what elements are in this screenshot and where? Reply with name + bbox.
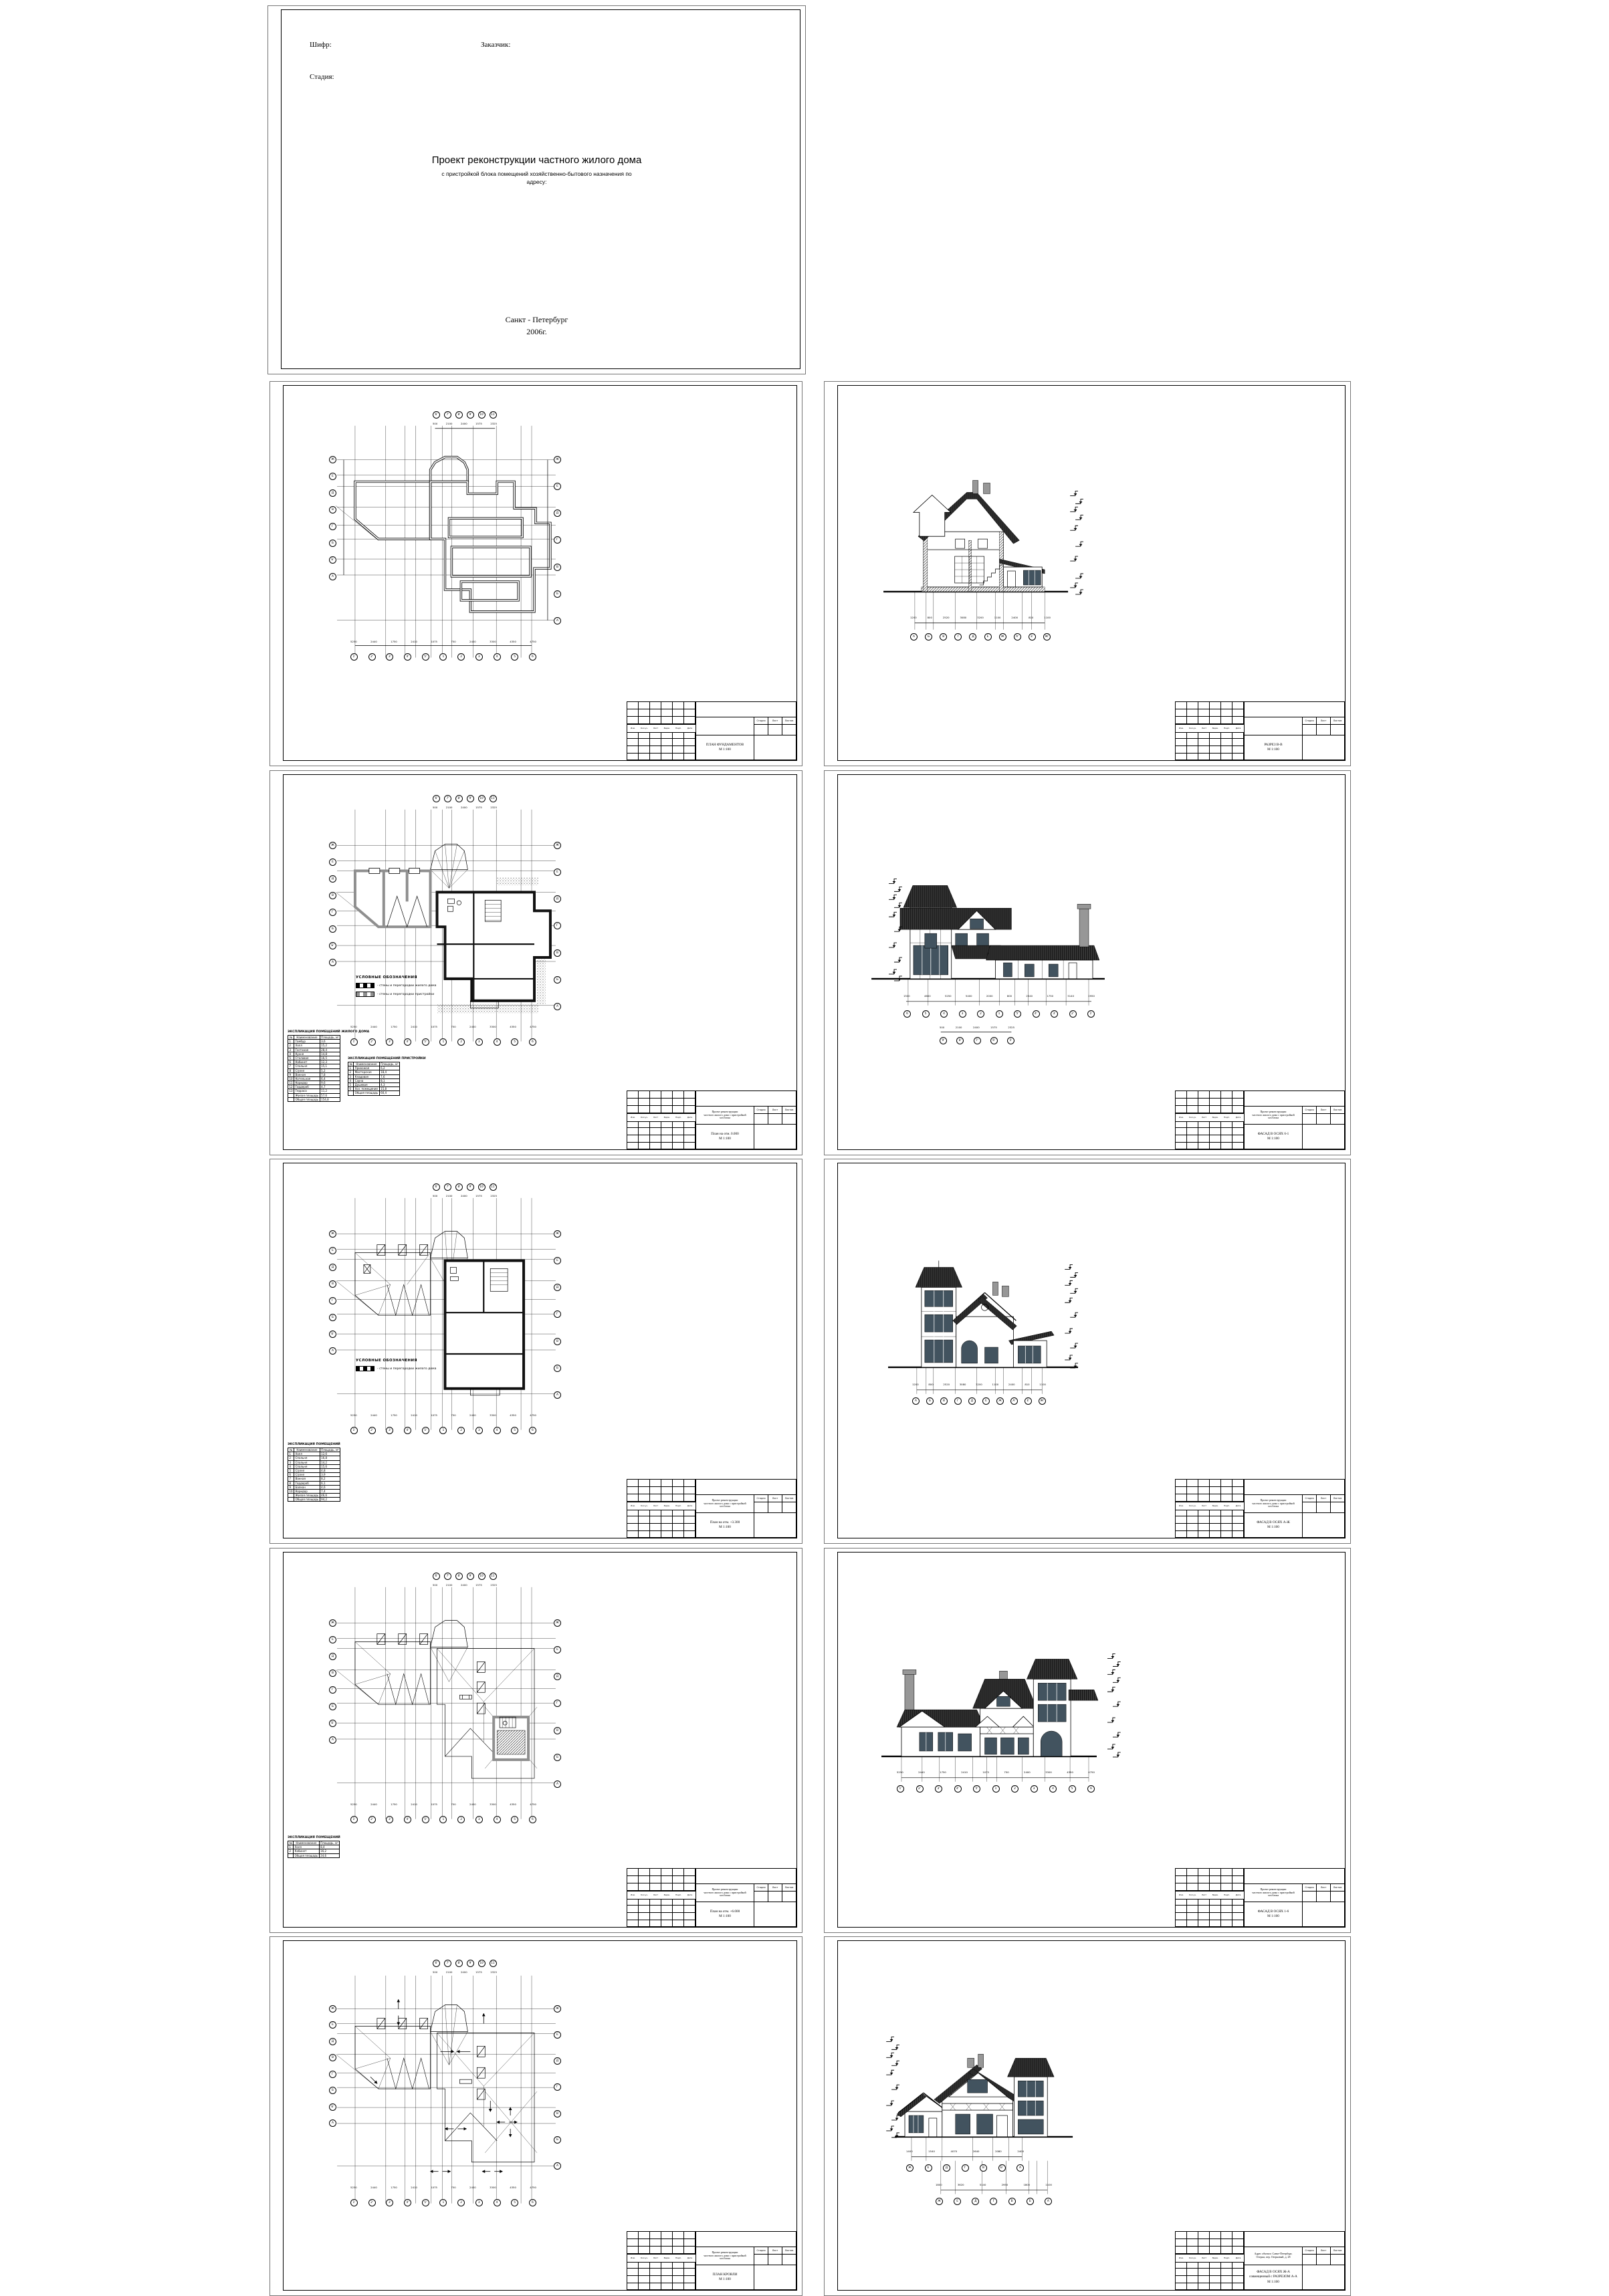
revision-table: Изм.Кол.уч.Лист№док.Подп.Дата — [627, 1480, 696, 1537]
axis-col-right: ЖЕДГВБА — [554, 456, 561, 624]
axis-row-bottom: 1'2'3'4'5'123456 — [897, 1785, 1095, 1793]
sheet-title: ПЛАН КРОВЛИМ 1:100 — [696, 2265, 754, 2289]
project-name-cell: Проект реконструкциичастного жилого дома… — [696, 2247, 754, 2265]
dim-row-bottom: 1200800252030803200110024008101100 — [910, 616, 1051, 619]
client-label: Заказчик: — [481, 41, 510, 49]
year: 2006г. — [268, 327, 805, 337]
dim-row-bottom: 150046005250540020008002540175051402950 — [903, 994, 1095, 998]
title-block: Изм.Кол.уч.Лист№док.Подп.Дата СтадияЛист… — [627, 701, 796, 760]
section-house — [914, 480, 1045, 591]
project-name-cell: Проект реконструкциичастного жилого дома… — [696, 1884, 754, 1902]
sheet-title: ФАСАД В ОСЯХ Ж-Асовмещенный с РАЗРЕЗОМ А… — [1245, 2265, 1302, 2289]
elevation-house — [897, 1659, 1098, 1756]
skylight-icons — [364, 1245, 428, 1274]
wall-symbol-home — [356, 1366, 374, 1371]
dim-row-top: 5002100240015752325 — [433, 422, 497, 425]
revision-table: Изм.Кол.уч.Лист№док.Подп.Дата — [1176, 2232, 1245, 2289]
chimney — [968, 2058, 974, 2067]
title-block: Изм.Кол.уч.Лист№док.Подп.Дата Проект рек… — [1175, 1479, 1345, 1538]
title-block: Изм.Кол.уч.Лист№док.Подп.Дата Проект рек… — [627, 1090, 796, 1149]
bay-roof — [431, 844, 468, 889]
status-table: СтадияЛистЛистов — [1302, 717, 1344, 735]
axis-row-bottom: 1'2'3'4'5'123456 — [350, 1038, 536, 1046]
dim-row-bottom: 525024401750241010757502400330043504750 — [350, 1803, 536, 1806]
project-title: Проект реконструкции частного жилого дом… — [268, 154, 805, 166]
tower-roof — [1027, 1659, 1077, 1679]
revision-table: Изм.Кол.уч.Лист№док.Подп.Дата — [627, 1091, 696, 1149]
revision-table: Изм.Кол.уч.Лист№док.Подп.Дата — [627, 2232, 696, 2289]
status-table: СтадияЛистЛистов — [754, 717, 796, 735]
axis-row-bottom: 1'2'3'4'5'123456 — [350, 2199, 536, 2206]
sheet-title: ФАСАД В ОСЯХ 6-1М 1:100 — [1245, 1125, 1302, 1149]
revision-table: Изм.Кол.уч.Лист№док.Подп.Дата — [1176, 702, 1245, 760]
axis-col-right: ЖЕДГВБА — [554, 1230, 561, 1399]
revision-table: Изм.Кол.уч.Лист№док.Подп.Дата — [1176, 1869, 1245, 1926]
arched-window — [1041, 1731, 1062, 1756]
revision-table: Изм.Кол.уч.Лист№док.Подп.Дата — [627, 1869, 696, 1926]
axis-row-1: ЖЕДГВБ'А — [906, 2164, 1024, 2172]
status-table: СтадияЛистЛистов — [1302, 1884, 1344, 1902]
elevation-marks — [889, 879, 902, 980]
title-block: Изм.Кол.уч.Лист№док.Подп.Дата Проект рек… — [627, 1868, 796, 1927]
sheet-facade-zh-a: 140015404070264020802400 ЖЕДГВБ'А 180036… — [824, 1936, 1351, 2296]
title-block: Изм.Кол.уч.Лист№док.Подп.Дата Проект рек… — [1175, 1868, 1345, 1927]
main-roof-band — [900, 908, 1011, 929]
side-roof — [1069, 1690, 1098, 1700]
elevation-house — [900, 885, 1099, 979]
axis-row-bottom: 6543215'4'3'2'1' — [903, 1010, 1095, 1018]
drawing-set-page: { "colors":{"ink":"#000000","roof_dark":… — [0, 0, 1609, 2296]
revision-table: Изм.Кол.уч.Лист№док.Подп.Дата — [627, 702, 696, 760]
dim-row-bottom: 1200800252030803200110024008101100 — [912, 1383, 1046, 1386]
elevation-marks — [1070, 491, 1083, 594]
axis-col-right: ЖЕДГВБА — [554, 842, 561, 1010]
slope-arrows — [370, 2000, 517, 2172]
legend: УСЛОВНЫЕ ОБОЗНАЧЕНИЯ - стены и перегород… — [356, 975, 456, 1000]
axis-row-top: 6'7'8'9'10'11' — [433, 1960, 497, 1967]
sheet-facade-1-6: 525024401750241010757502400330043504750 … — [824, 1548, 1351, 1933]
sheet-title: План на отм. +3.300М 1:100 — [696, 1513, 754, 1537]
dim-row-bottom: 525024401750241010757502400330043504750 — [350, 1413, 536, 1417]
wall-symbol-addition — [356, 992, 374, 997]
axis-col-right: ЖЕДГВБА — [554, 1619, 561, 1788]
title-block: Изм.Кол.уч.Лист№док.Подп.Дата Адрес объе… — [1175, 2231, 1345, 2290]
chimney — [1079, 908, 1089, 947]
axis-col-right: ЖЕДГВБА — [554, 2005, 561, 2170]
sheet-title: План на отм. +6.000М 1:100 — [696, 1902, 754, 1926]
dim-row-top: 5002100240015752325 — [433, 806, 497, 809]
chimney — [978, 2054, 984, 2067]
axis-row-bottom: АБВГДЕЖА'Е'Ж' — [910, 633, 1051, 641]
dim-row-bottom: 525024401750241010757502400330043504750 — [350, 1025, 536, 1028]
sheet-title: План на отм. 0.000М 1:100 — [696, 1125, 754, 1149]
elevation-marks — [886, 2037, 899, 2137]
city: Санкт - Петербург — [268, 315, 805, 325]
sheet-title-page: Шифр: Заказчик: Стадия: Проект реконстру… — [267, 5, 806, 374]
dim-row-bottom: 525024401750241010757502400330043504750 — [350, 2186, 536, 2189]
sheet-title: ФАСАД В ОСЯХ 1-6М 1:100 — [1245, 1902, 1302, 1926]
title-block: Изм.Кол.уч.Лист№док.Подп.Дата Проект рек… — [1175, 1090, 1345, 1149]
project-name-cell — [1245, 717, 1302, 735]
sheet-facade-a-zh: 1200800252030803200110024008101100 АБВГД… — [824, 1159, 1351, 1544]
second-floor-walls — [445, 1260, 524, 1395]
axis-row-top: 6'7'8'9'10'11' — [433, 795, 497, 802]
axis-col-left: ЖЕДВГББ'А — [329, 842, 336, 966]
addition-walls — [355, 868, 431, 927]
axis-row-2: ЖЕДГВБА — [936, 2198, 1052, 2205]
project-name-cell: Проект реконструкциичастного жилого дома… — [696, 1107, 754, 1124]
axis-col-left: ЖЕДВГББ'А — [329, 1230, 336, 1355]
tower-roof — [903, 885, 957, 907]
status-table: СтадияЛистЛистов — [754, 1884, 796, 1902]
code-label: Шифр: — [310, 41, 332, 49]
chimney — [973, 480, 978, 493]
sheet-section-v-v: 1200800252030803200110024008101100 АБВГД… — [824, 381, 1351, 766]
dim-row-1: 140015404070264020802400 — [906, 2150, 1024, 2153]
arched-window — [962, 1341, 978, 1363]
axis-row-bottom: 1'2'3'4'5'123456 — [350, 1427, 536, 1434]
axis-row-bottom: АБВГДЕЖА'Е'Ж' — [912, 1397, 1046, 1405]
dim-row-top: 5002100240015752325 — [433, 1583, 497, 1587]
status-table: СтадияЛистЛистов — [1302, 1107, 1344, 1124]
title-block: Изм.Кол.уч.Лист№док.Подп.Дата СтадияЛист… — [1175, 701, 1345, 760]
wall-symbol-home — [356, 983, 374, 988]
project-name-cell: Проект реконструкциичастного жилого дома… — [1245, 1884, 1302, 1902]
status-table: СтадияЛистЛистов — [754, 2247, 796, 2265]
sheet-plan-3-300: 6'7'8'9'10'11' 5002100240015752325 ЖЕДВГ… — [270, 1159, 802, 1544]
elevation-house — [916, 1260, 1054, 1367]
axis-col-left: ЖЕДВГББ'А — [329, 456, 336, 580]
project-name-cell: Проект реконструкциичастного жилого дома… — [1245, 1107, 1302, 1124]
tower-roof — [1007, 2058, 1054, 2077]
chimney — [984, 483, 990, 493]
roof-surfaces — [355, 2005, 537, 2162]
sheet-foundation-plan: 6'7'8'9'10'11' 5002100240015752325 ЖЕДВГ… — [270, 381, 802, 766]
doc-code-cell — [696, 702, 796, 717]
status-table: СтадияЛистЛистов — [1302, 2247, 1344, 2265]
dim-row-2: 180036205140295018001100 — [936, 2183, 1052, 2186]
axis-row-bottom-2: 9'8'7'6'5' — [940, 1037, 1014, 1044]
explication-table-addition: ЭКСПЛИКАЦИЯ ПОМЕЩЕНИЙ ПРИСТРОЙКИ №Наимен… — [348, 1057, 426, 1096]
tower-room — [485, 1707, 537, 1768]
dim-row-bottom: 525024401750241010757502400330043504750 — [897, 1770, 1095, 1774]
project-name-cell: Проект реконструкциичастного жилого дома… — [1245, 1495, 1302, 1512]
axis-row-bottom: 1'2'3'4'5'123456 — [350, 653, 536, 661]
title-block: Изм.Кол.уч.Лист№док.Подп.Дата Проект рек… — [627, 1479, 796, 1538]
elevation-house — [897, 2054, 1054, 2137]
legend: УСЛОВНЫЕ ОБОЗНАЧЕНИЯ - стены и перегород… — [356, 1359, 456, 1375]
project-name-cell — [696, 717, 754, 735]
stage-label: Стадия: — [310, 73, 334, 81]
title-block: Изм.Кол.уч.Лист№док.Подп.Дата Проект рек… — [627, 2231, 796, 2290]
chimney — [992, 1282, 998, 1295]
revision-table: Изм.Кол.уч.Лист№док.Подп.Дата — [1176, 1480, 1245, 1537]
project-name-cell: Проект реконструкциичастного жилого дома… — [696, 1495, 754, 1512]
elevation-marks — [1065, 1264, 1078, 1367]
wing-roof — [986, 945, 1099, 960]
sheet-title: ФАСАД В ОСЯХ А-ЖМ 1:100 — [1245, 1513, 1302, 1537]
sheet-facade-6-1: 150046005250540020008002540175051402950 … — [824, 770, 1351, 1155]
project-subtitle-2: адресу: — [268, 179, 805, 185]
dim-row-bottom-2: 5002100240015752325 — [940, 1026, 1014, 1029]
chimney — [1002, 1286, 1008, 1296]
tower-roof — [916, 1267, 962, 1287]
sheet-plan-0-000: 6'7'8'9'10'11' 5002100240015752325 ЖЕДВГ… — [270, 770, 802, 1155]
sheet-title: ПЛАН ФУНДАМЕНТОВМ 1:100 — [696, 735, 754, 760]
axis-col-left: ЖЕДВГББ'А — [329, 1619, 336, 1744]
status-table: СтадияЛистЛистов — [754, 1107, 796, 1124]
status-table: СтадияЛистЛистов — [754, 1495, 796, 1512]
sheet-title: РАЗРЕЗ В-ВМ 1:100 — [1245, 735, 1302, 760]
status-table: СтадияЛистЛистов — [1302, 1495, 1344, 1512]
elevation-marks — [1107, 1653, 1121, 1756]
sheet-roof-plan: 6'7'8'9'10'11' 5002100240015752325 ЖЕДВГ… — [270, 1936, 802, 2296]
chimney — [999, 1671, 1007, 1679]
axis-row-top: 6'7'8'9'10'11' — [433, 1183, 497, 1191]
dim-row-top: 5002100240015752325 — [433, 1194, 497, 1197]
dim-row-bottom: 525024401750241010757502400330043504750 — [350, 640, 536, 643]
axis-row-top: 6'7'8'9'10'11' — [433, 1573, 497, 1580]
axis-row-top: 6'7'8'9'10'11' — [433, 411, 497, 419]
addition-roof-plan — [355, 1245, 431, 1316]
address-cell: Адрес объекта: Санкт-Петербург,Озерки, п… — [1245, 2247, 1302, 2265]
axis-row-bottom: 1'2'3'4'5'123456 — [350, 1816, 536, 1823]
explication-table-floor3: ЭКСПЛИКАЦИЯ ПОМЕЩЕНИЙ №НаименованиеПлоща… — [288, 1836, 340, 1858]
axis-col-left: ЖЕДВГББ'А — [329, 2005, 336, 2127]
explication-table-floor2: ЭКСПЛИКАЦИЯ ПОМЕЩЕНИЙ №НаименованиеПлоща… — [288, 1443, 340, 1502]
dim-row-top: 5002100240015752325 — [433, 1970, 497, 1974]
sheet-plan-6-000: 6'7'8'9'10'11' 5002100240015752325 ЖЕДВГ… — [270, 1548, 802, 1933]
project-subtitle-1: с пристройкой блока помещений хозяйствен… — [268, 170, 805, 177]
revision-table: Изм.Кол.уч.Лист№док.Подп.Дата — [1176, 1091, 1245, 1149]
